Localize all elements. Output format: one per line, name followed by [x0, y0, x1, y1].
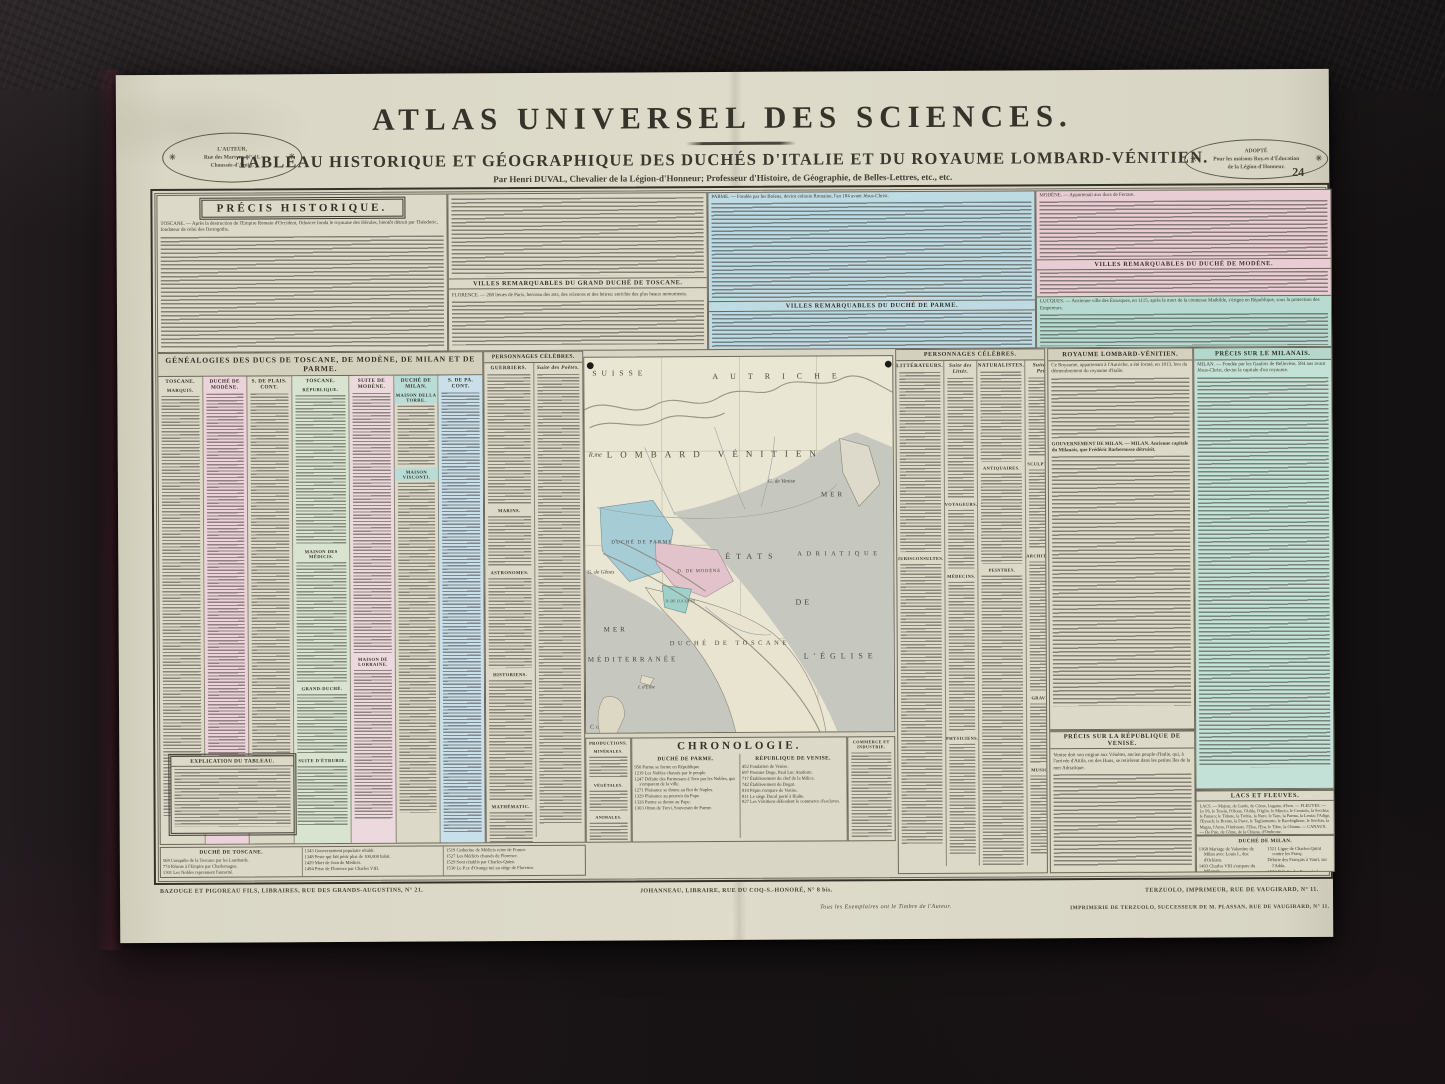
- personnages-right-col1: LITTÉRATEURS. JURISCONSULTES.: [896, 361, 946, 866]
- personnages-left-col2: Suite des Poëtes.: [534, 363, 585, 837]
- map-label-g-genes: G. de Gênes: [587, 570, 614, 576]
- personnages-subheader: SCULPTEURS.: [1026, 459, 1048, 467]
- personnages-subheader: ARCHITECTES.: [1026, 551, 1048, 559]
- duche-toscane-entries-a: 568 Conquête de la Toscane par les Lomba…: [161, 856, 302, 878]
- personnages-subheader: MATHÉMATIC.: [487, 802, 536, 810]
- productions-text: [589, 791, 627, 811]
- duche-milan-entries: 1368 Mariage de Valentine de Milan avec …: [1197, 845, 1334, 873]
- parme-text: [711, 202, 1031, 300]
- map-block: SUISSE AUTRICHE R.me LOMBARD VÉNITIEN G.…: [583, 355, 895, 734]
- imprint-printer: IMPRIMERIE DE TERZUOLO, SUCCESSEUR DE M.…: [1070, 904, 1329, 911]
- genealogy-col-header: S. DE PA. CONT.: [439, 375, 483, 390]
- chronologie-venise-entries: 452 Fondation de Venise.697 Premier Doge…: [740, 762, 847, 806]
- personnages-left-col1: GUERRIERS. MARINS. ASTRONOMES. HISTORIEN…: [484, 363, 536, 837]
- genealogy-col-toscane2: TOSCANE. RÉPUBLIQUE. MAISON DES MÉDICIS.…: [292, 376, 352, 845]
- genealogy-subheader: MARQUIS.: [158, 386, 202, 394]
- names-list: [947, 378, 974, 498]
- names-list: [899, 372, 941, 552]
- names-list: [488, 578, 531, 668]
- productions-title: PRODUCTIONS.: [586, 738, 630, 746]
- names-list: [490, 812, 533, 842]
- lucques-text: [1040, 313, 1328, 347]
- personnages-subheader: PHYSICIENS.: [946, 734, 979, 742]
- royaume-text: [1051, 377, 1189, 438]
- villes-parme-title: VILLES REMARQUABLES DU DUCHÉ DE PARME.: [709, 300, 1035, 313]
- genealogy-col-milan: DUCHÉ DE MILAN. MAISON DELLA TORRE. MAIS…: [394, 375, 441, 844]
- productions-text: [589, 757, 627, 779]
- map-label-adriatique: ADRIATIQUE: [797, 550, 881, 557]
- map-label-g-venise: G. de Venise: [768, 479, 796, 485]
- personnages-subheader: MUSICIENS.: [1027, 765, 1048, 773]
- map-label-mer2: MER: [604, 626, 628, 634]
- productions-text: [590, 823, 628, 841]
- personnages-left-block: PERSONNAGES CÉLÈBRES. GUERRIERS. MARINS.…: [483, 351, 586, 844]
- names-list: [900, 564, 942, 844]
- personnages-subheader: JURISCONSULTES.: [897, 554, 944, 562]
- duche-milan-block: DUCHÉ DE MILAN. 1368 Mariage de Valentin…: [1196, 835, 1335, 873]
- modene-text: [1039, 200, 1327, 258]
- genealogy-col-modene-suite: SUITE DE MODÈNE. MAISON DE LORRAINE.: [350, 376, 397, 845]
- genealogy-col-text: [297, 766, 348, 826]
- personnages-subheader: NATURALISTES.: [978, 360, 1025, 369]
- lacs-text: LACS. — Majeur, de Garde, de Côme, Lugan…: [1197, 803, 1334, 835]
- names-list: [1030, 775, 1048, 855]
- florence-lead: FLORENCE. — 268 lieues de Paris, berceau…: [449, 290, 707, 300]
- map-label-toscane: DUCHÉ DE TOSCANE: [670, 639, 790, 648]
- toscane-paragraph-lead: TOSCANE. — Après la destruction de l'Emp…: [157, 218, 446, 234]
- toscane-continuation-text: [451, 197, 703, 276]
- commerce-block: COMMERCE ET INDUSTRIE.: [847, 736, 896, 841]
- personnages-right-title: PERSONNAGES CÉLÈBRES.: [896, 349, 1044, 361]
- milanais-title: PRÉCIS SUR LE MILANAIS.: [1194, 348, 1331, 361]
- genealogy-title: GÉNÉALOGIES DES DUCS DE TOSCANE, DE MODÈ…: [158, 352, 482, 377]
- personnages-subheader: ANTIQUAIRES.: [978, 463, 1025, 471]
- productions-subheader: ANIMALES.: [587, 812, 631, 820]
- chronologie-block: CHRONOLOGIE. DUCHÉ DE PARME. 950 Parme s…: [631, 736, 848, 842]
- names-list: [981, 473, 1022, 563]
- personnages-subheader: PEINTRES.: [979, 565, 1026, 573]
- precis-historique-title: PRÉCIS HISTORIQUE.: [201, 199, 403, 218]
- productions-block: PRODUCTIONS. MINÉRALES. VÉGÉTALES. ANIMA…: [585, 737, 632, 842]
- names-list: [488, 516, 531, 566]
- toscane-paragraph-text: [161, 235, 445, 348]
- genealogy-subheader: MAISON VISCONTI.: [395, 467, 439, 480]
- chronologie-parme-entries: 950 Parme se forme en République.1219 Le…: [632, 763, 739, 812]
- genealogy-col-header: DUCHÉ DE MILAN.: [394, 375, 438, 390]
- names-list: [1028, 377, 1048, 457]
- genealogy-col-text: [296, 562, 347, 682]
- personnages-subheader: VOYAGEURS.: [945, 500, 978, 508]
- milanais-lead: MILAN. — Fondée par les Gaulois de Bello…: [1194, 360, 1331, 375]
- names-list: [981, 371, 1022, 461]
- precis-historique-block: PRÉCIS HISTORIQUE. TOSCANE. — Après la d…: [156, 193, 448, 353]
- personnages-subheader: GRAVEURS.: [1027, 693, 1048, 701]
- personnages-subheader: HISTORIENS.: [486, 670, 535, 678]
- explication-box: EXPLICATION DU TABLEAU.: [170, 755, 294, 834]
- genealogy-table: GÉNÉALOGIES DES DUCS DE TOSCANE, DE MODÈ…: [157, 351, 486, 845]
- genealogy-col-header: SUITE DE MODÈNE.: [350, 376, 394, 391]
- duche-toscane-entries-c: 1519 Catherine de Médicis reine de Franc…: [444, 846, 585, 872]
- map-label-mer: MER: [821, 490, 845, 498]
- personnages-subheader: MARINS.: [485, 506, 534, 514]
- royaume-text2: [1052, 456, 1191, 707]
- map-label-etats: ÉTATS: [725, 551, 778, 561]
- names-list: [948, 582, 975, 732]
- names-list: [1029, 561, 1048, 691]
- genealogy-subheader: MAISON DELLA TORRE.: [394, 390, 438, 403]
- villes-parme-text: [712, 313, 1032, 349]
- imprint-johanneau: JOHANNEAU, LIBRAIRE, RUE DU COQ-S.-HONOR…: [640, 887, 833, 894]
- explication-text: [174, 768, 290, 827]
- names-list: [948, 510, 975, 570]
- genealogy-col-text: [353, 393, 392, 653]
- chronologie-venise-col: RÉPUBLIQUE DE VENISE. 452 Fondation de V…: [740, 753, 847, 838]
- personnages-right-block: PERSONNAGES CÉLÈBRES. LITTÉRATEURS. JURI…: [895, 348, 1048, 874]
- italy-map: SUISSE AUTRICHE R.me LOMBARD VÉNITIEN G.…: [584, 356, 895, 734]
- villes-toscane-text: [452, 300, 704, 345]
- parme-lead: PARME. — Fondée par les Boïens, devint c…: [708, 191, 1034, 201]
- milanais-text: [1197, 376, 1330, 767]
- personnages-right-col4: Suite des Peint. SCULPTEURS. ARCHITECTES…: [1025, 360, 1048, 865]
- chronologie-parme-col: DUCHÉ DE PARME. 950 Parme se forme en Ré…: [632, 754, 740, 839]
- registration-dot: [885, 361, 892, 368]
- map-label-suisse: SUISSE: [592, 368, 647, 377]
- modene-lucques-block: MODÈNE. — Appartenait aux ducs de Ferrar…: [1035, 189, 1332, 349]
- modene-lead: MODÈNE. — Appartenait aux ducs de Ferrar…: [1036, 190, 1330, 200]
- map-label-de: DE: [795, 598, 812, 607]
- personnages-subheader: Suite des Littér.: [944, 361, 977, 376]
- map-label-lombard: LOMBARD VÉNITIEN: [607, 448, 824, 459]
- venise-precis-title: PRÉCIS SUR LA RÉPUBLIQUE DE VENISE.: [1050, 731, 1194, 750]
- map-label-eglise: L'ÉGLISE: [804, 650, 878, 660]
- imprint-note: Tous les Exemplaires ont le Timbre de l'…: [820, 904, 951, 911]
- genealogy-subheader: RÉPUBLIQUE.: [292, 385, 349, 393]
- royaume-gouvernement: GOUVERNEMENT DE MILAN. — MILAN. Ancienne…: [1049, 439, 1193, 454]
- personnages-subheader: Suite des Peint.: [1025, 360, 1048, 375]
- names-list: [1030, 703, 1048, 763]
- genealogy-subheader: MAISON DE LORRAINE.: [351, 655, 395, 668]
- commerce-title: COMMERCE ET INDUSTRIE.: [848, 737, 894, 750]
- genealogy-col-text: [398, 483, 437, 813]
- venise-precis-text: [1053, 773, 1191, 866]
- atlas-title: ATLAS UNIVERSEL DES SCIENCES.: [116, 97, 1329, 139]
- genealogy-col-parme-suite: S. DE PA. CONT.: [439, 375, 485, 845]
- genealogy-col-text: [161, 396, 201, 816]
- page-number: 24: [1292, 165, 1304, 180]
- genealogy-col-header: S. DE PLAIS. CONT.: [247, 376, 291, 391]
- explication-title: EXPLICATION DU TABLEAU.: [171, 756, 293, 767]
- venise-precis-lead: Venise doit son origine aux Vénètes, anc…: [1050, 751, 1194, 773]
- personnages-subheader: ASTRONOMES.: [485, 568, 534, 576]
- royaume-title: ROYAUME LOMBARD-VÉNITIEN.: [1048, 349, 1192, 362]
- villes-modene-title: VILLES REMARQUABLES DU DUCHÉ DE MODÈNE.: [1037, 258, 1331, 271]
- parme-block: PARME. — Fondée par les Boïens, devint c…: [707, 190, 1036, 350]
- personnages-subheader: Suite des Poëtes.: [534, 363, 583, 372]
- atlas-sheet: ✳ L'AUTEUR, Rue des Martyrs, N° 31, Chau…: [116, 69, 1334, 943]
- duche-toscane-entries-b: 1343 Gouvernement populaire rétabli.1348…: [302, 846, 443, 872]
- genealogy-col-text: [297, 694, 348, 754]
- genealogy-col-text: [397, 406, 435, 466]
- personnages-right-col3: NATURALISTES. ANTIQUAIRES. PEINTRES.: [978, 360, 1028, 865]
- personnages-right-col2: Suite des Littér. VOYAGEURS. MÉDECINS. P…: [944, 361, 980, 866]
- lacs-title: LACS ET FLEUVES.: [1196, 790, 1333, 802]
- genealogy-col-header: TOSCANE.: [158, 377, 202, 386]
- genealogy-col-text: [295, 395, 346, 545]
- map-label-rme: R.me: [588, 452, 602, 459]
- lucques-lead: LUCQUES. — Ancienne ville des Étrusques,…: [1037, 296, 1331, 312]
- productions-subheader: VÉGÉTALES.: [586, 780, 630, 788]
- title-rule: [686, 142, 796, 146]
- royaume-lead: Ce Royaume, appartenant à l'Autriche, a …: [1048, 361, 1192, 376]
- map-label-mediterranee: MÉDITERRANÉE: [588, 655, 678, 663]
- personnages-subheader: LITTÉRATEURS.: [896, 361, 943, 370]
- names-list: [537, 374, 582, 824]
- milanais-block: PRÉCIS SUR LE MILANAIS. MILAN. — Fondée …: [1193, 347, 1334, 790]
- names-list: [982, 575, 1024, 865]
- duche-toscane-block: DUCHÉ DE TOSCANE. 568 Conquête de la Tos…: [160, 845, 586, 878]
- chronologie-title: CHRONOLOGIE.: [632, 737, 846, 754]
- lacs-block: LACS ET FLEUVES. LACS. — Majeur, de Gard…: [1195, 789, 1334, 836]
- names-list: [1029, 469, 1048, 549]
- names-list: [949, 744, 976, 854]
- villes-modene-text: [1040, 271, 1328, 295]
- personnages-left-title: PERSONNAGES CÉLÈBRES.: [484, 352, 582, 364]
- names-list: [489, 680, 532, 800]
- commerce-text: [851, 752, 891, 838]
- imprint-bazouge: BAZOUGE ET PIGOREAU FILS, LIBRAIRES, RUE…: [160, 888, 423, 895]
- toscane-continuation-block: VILLES REMARQUABLES DU GRAND DUCHÉ DE TO…: [447, 192, 708, 351]
- venise-precis-block: PRÉCIS SUR LA RÉPUBLIQUE DE VENISE. Veni…: [1049, 730, 1196, 874]
- productions-subheader: MINÉRALES.: [586, 746, 630, 754]
- personnages-subheader: MÉDECINS.: [945, 572, 978, 580]
- map-label-elbe: I. d'Elbe: [637, 685, 656, 690]
- imprint-terzuolo: TERZUOLO, IMPRIMEUR, RUE DE VAUGIRARD, N…: [1145, 887, 1319, 894]
- personnages-subheader: GUERRIERS.: [484, 363, 533, 372]
- royaume-block: ROYAUME LOMBARD-VÉNITIEN. Ce Royaume, ap…: [1047, 348, 1195, 731]
- genealogy-col-text: [354, 670, 392, 820]
- main-frame: PRÉCIS HISTORIQUE. TOSCANE. — Après la d…: [150, 183, 1333, 885]
- genealogy-subheader: GRAND-DUCHÉ.: [294, 684, 351, 692]
- genealogy-col-header: DUCHÉ DE MODÈNE.: [203, 377, 247, 392]
- genealogy-subheader: MAISON DES MÉDICIS.: [293, 547, 350, 560]
- map-label-autriche: AUTRICHE: [712, 371, 848, 381]
- map-label-modene: D. DE MODÈNE: [677, 568, 721, 574]
- villes-toscane-title: VILLES REMARQUABLES DU GRAND DUCHÉ DE TO…: [449, 277, 707, 289]
- map-label-lucques: D. DE LUCQUES: [665, 598, 695, 603]
- genealogy-subheader: SUITE D'ÉTRURIE.: [294, 756, 351, 764]
- lucques-block: LUCQUES. — Ancienne ville des Étrusques,…: [1037, 295, 1331, 348]
- names-list: [487, 374, 530, 504]
- genealogy-col-text: [442, 392, 482, 832]
- genealogy-col-header: TOSCANE.: [292, 376, 349, 385]
